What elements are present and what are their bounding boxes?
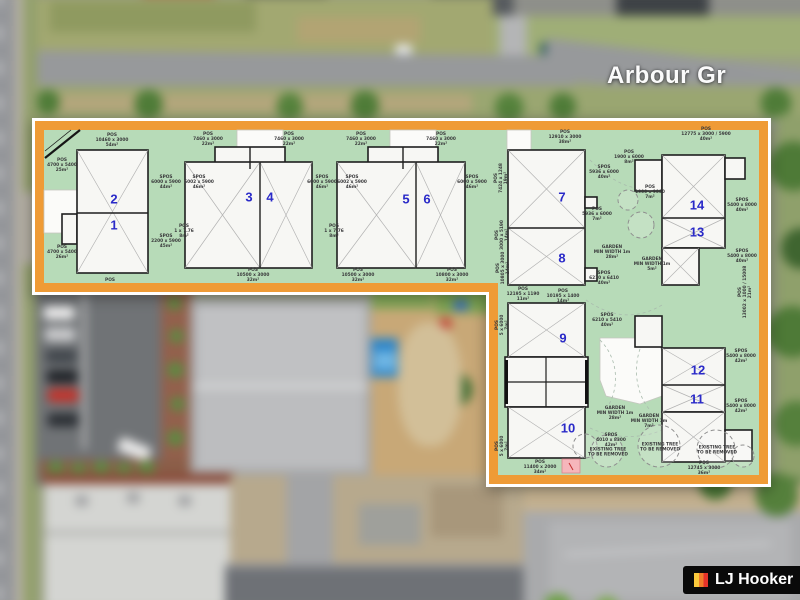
agency-logo: LJ Hooker [683,566,800,594]
listing-image: Arbour Gr [0,0,800,600]
ljhooker-logo-icon [694,573,708,587]
site-plan-overlay [0,0,800,600]
visitor-space [562,459,580,473]
agency-name: LJ Hooker [715,572,793,588]
